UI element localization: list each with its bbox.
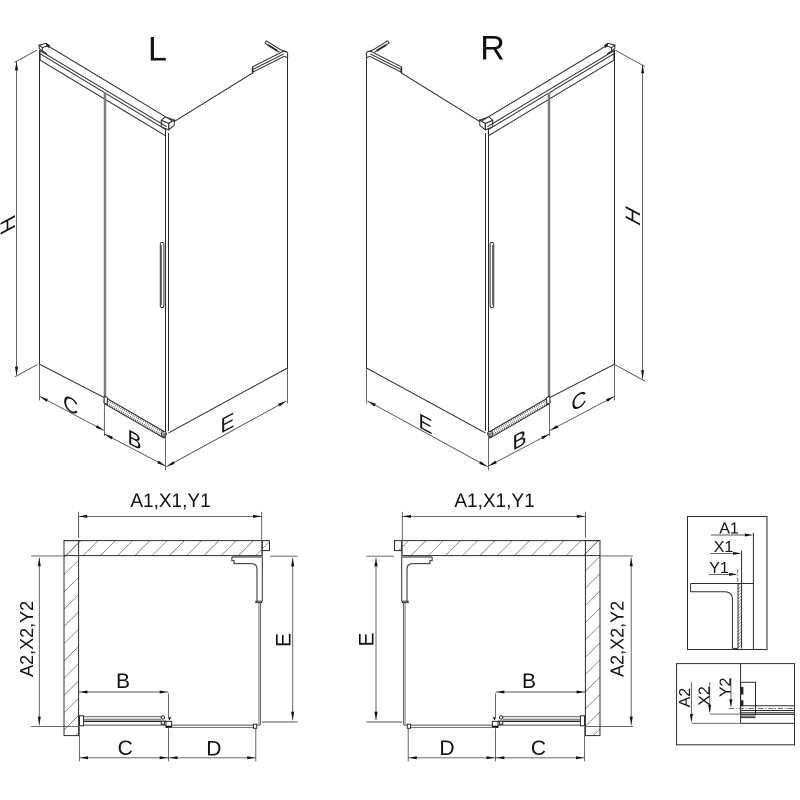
- svg-text:E: E: [273, 633, 296, 647]
- svg-text:D: D: [206, 737, 221, 760]
- svg-text:E: E: [356, 632, 379, 646]
- svg-text:C: C: [531, 737, 546, 760]
- svg-text:A1: A1: [719, 520, 739, 537]
- svg-text:Y2: Y2: [717, 678, 734, 698]
- svg-text:Y1: Y1: [709, 560, 729, 577]
- svg-text:A1,X1,Y1: A1,X1,Y1: [130, 491, 210, 512]
- svg-text:X2: X2: [696, 686, 713, 706]
- svg-text:C: C: [118, 737, 133, 760]
- svg-text:L: L: [148, 30, 167, 68]
- svg-text:A2,X2,Y2: A2,X2,Y2: [17, 601, 37, 677]
- svg-text:R: R: [480, 29, 505, 67]
- svg-text:X1: X1: [714, 539, 734, 556]
- svg-text:D: D: [439, 737, 454, 760]
- svg-text:B: B: [522, 670, 536, 693]
- svg-text:B: B: [116, 670, 130, 693]
- svg-text:A2,X2,Y2: A2,X2,Y2: [607, 601, 627, 677]
- svg-text:A1,X1,Y1: A1,X1,Y1: [454, 491, 534, 512]
- svg-text:A2: A2: [677, 688, 694, 708]
